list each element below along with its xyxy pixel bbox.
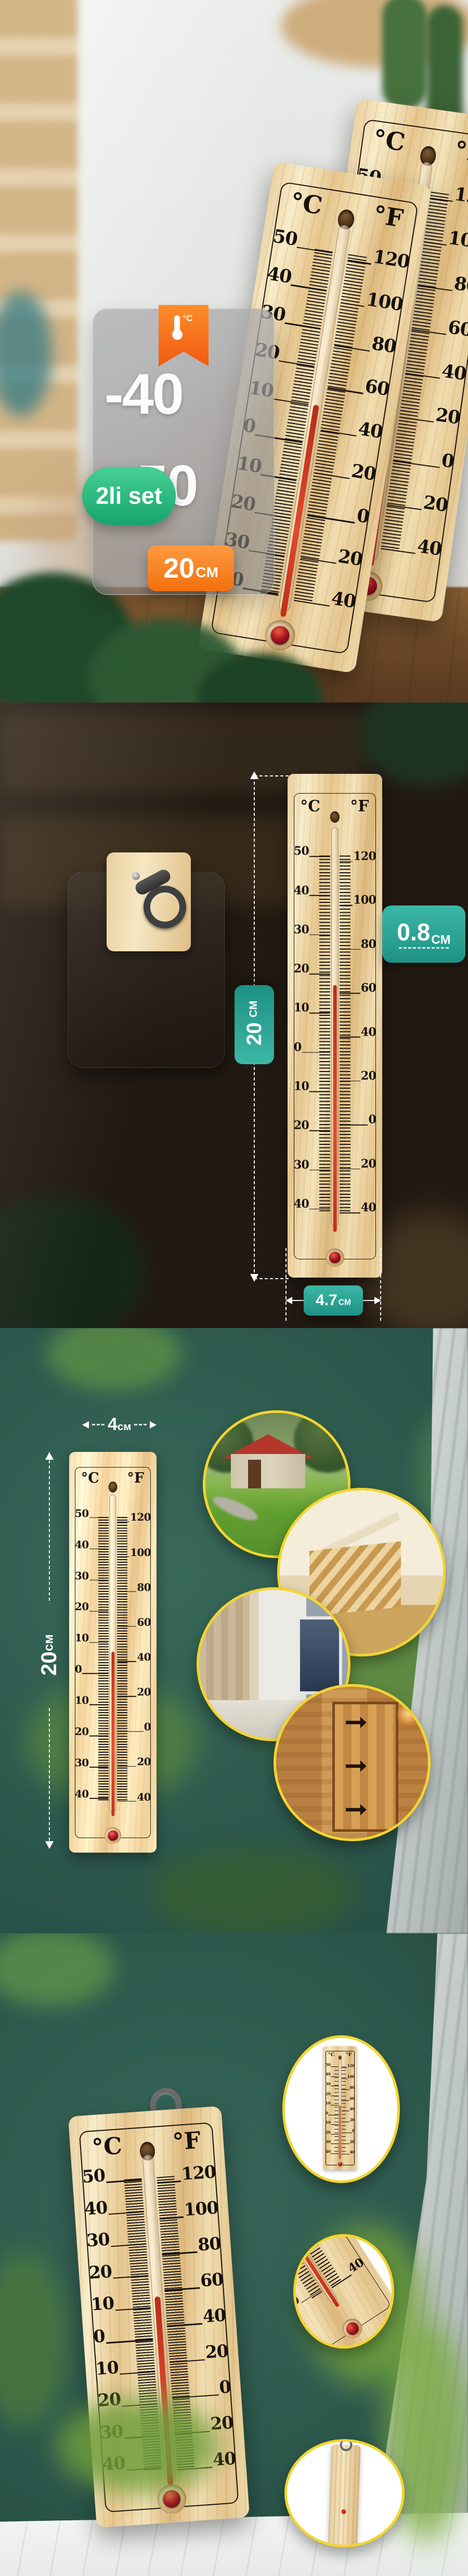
scale-value-fahrenheit: 80 (197, 2235, 221, 2253)
scale-value-celsius: 20 (294, 964, 309, 975)
sauna-photo (276, 1687, 428, 1839)
scale-value-fahrenheit: 60 (364, 377, 391, 398)
product-listing-image: °C°F504030201001020304012010080604020020… (0, 0, 468, 2576)
scale-row-celsius: 40 (75, 1787, 109, 1799)
marble-table (0, 2513, 468, 2576)
scale-value-celsius: 40 (326, 2073, 330, 2076)
width-measure-label: 4см (82, 1414, 157, 1435)
scale-line (89, 1736, 109, 1736)
window (297, 1616, 342, 1694)
scale-row-fahrenheit: 20 (342, 2118, 355, 2122)
hanger-ring-icon (340, 2439, 353, 2451)
scale-value-fahrenheit: 40 (350, 2108, 355, 2111)
scale-row-fahrenheit: 120 (342, 2064, 355, 2068)
scale-value-fahrenheit: 20 (361, 1071, 376, 1082)
background-blur-blob (0, 0, 78, 541)
celsius-unit-label: °C (83, 2132, 131, 2162)
scale-row-fahrenheit: 100 (342, 2075, 355, 2079)
scale-value-fahrenheit: 60 (200, 2271, 224, 2289)
scale-value-celsius: 10 (90, 2295, 114, 2313)
celsius-unit-label: °C (77, 1470, 103, 1486)
fahrenheit-unit-label: °F (123, 1470, 149, 1486)
scale-row-fahrenheit: 60 (342, 2096, 355, 2100)
scale-value-fahrenheit: 40 (416, 538, 443, 558)
scale-row-celsius: 20 (75, 1725, 109, 1737)
scale-row-celsius: 50 (326, 2062, 339, 2067)
scale-row-celsius: 40 (84, 2193, 145, 2217)
scale-row-celsius: 10 (294, 1001, 331, 1014)
scale-line (89, 1767, 109, 1767)
fahrenheit-unit-label: °F (345, 797, 374, 815)
scale-row-celsius: 20 (326, 2130, 339, 2134)
scale-value-celsius: 40 (75, 1789, 89, 1799)
scale-line (89, 1704, 109, 1705)
scale-row-celsius: 10 (95, 2353, 155, 2377)
scale-line (340, 1037, 360, 1038)
scale-row-celsius: 50 (294, 844, 331, 857)
scale-value-celsius: 30 (326, 2140, 330, 2144)
scale-line (309, 1209, 330, 1210)
detail-photo-front: °C°F504030201001020304012010080604020020… (282, 2035, 400, 2183)
scale-line (309, 856, 330, 857)
scale-value-fahrenheit: 0 (369, 1115, 376, 1126)
arrow-up-icon (45, 1452, 54, 1460)
scale-row-celsius: 30 (86, 2225, 147, 2249)
arrow-left-icon (82, 1421, 89, 1429)
height-measure-line (49, 1460, 50, 1601)
scale-value-celsius: 20 (88, 2263, 112, 2281)
scale-row-fahrenheit: 40 (165, 2303, 226, 2327)
width-guide-left (285, 1248, 287, 1321)
scale-row-fahrenheit: 20 (117, 1685, 151, 1697)
scale-row-fahrenheit: 80 (160, 2231, 221, 2255)
scale-row-fahrenheit: 120 (117, 1510, 151, 1522)
scale-row-celsius: 10 (90, 2289, 151, 2313)
scale-value-fahrenheit: 20 (350, 2119, 355, 2122)
measure-connector (254, 1278, 289, 1279)
thermometer-icon (174, 315, 180, 336)
scale-value-celsius: 0 (93, 2328, 105, 2345)
scale-value-fahrenheit: 40 (330, 590, 357, 611)
mercury-bulb (338, 2162, 342, 2166)
hanger-screw (132, 872, 140, 880)
fahrenheit-unit-label: °F (344, 2052, 354, 2058)
scale-row-celsius: 20 (294, 1118, 331, 1131)
scale-value-celsius: 50 (82, 2167, 106, 2185)
panel-hero: °C°F504030201001020304012010080604020020… (0, 0, 468, 703)
ribbon-unit-label: °C (183, 313, 192, 324)
mercury-column (111, 1652, 114, 1816)
scale-line (340, 1213, 360, 1214)
scale-value-celsius: 10 (75, 1633, 89, 1643)
range-low-value: -40 (105, 367, 183, 422)
detail-photo-bulb-closeup: °C°F504030201001020304012010080604020020… (293, 2234, 394, 2349)
scale-value-fahrenheit: 40 (441, 362, 467, 382)
scale-value-celsius: 0 (75, 1664, 82, 1674)
scale-value-celsius: 20 (294, 1120, 309, 1131)
scale-value-fahrenheit: 20 (435, 406, 461, 426)
scale-value-celsius: 20 (326, 2131, 330, 2134)
scale-line (82, 1673, 108, 1674)
scale-value-celsius: 10 (294, 1003, 309, 1014)
scale-row-celsius: 50 (75, 1506, 109, 1518)
scale-value-fahrenheit: 40 (137, 1652, 151, 1662)
scale-row-celsius: 40 (294, 1196, 331, 1209)
scale-value-celsius: 50 (326, 2063, 330, 2067)
scale-row-fahrenheit: 60 (117, 1615, 151, 1627)
mercury-bulb (344, 2320, 361, 2337)
scale-line (309, 1169, 330, 1170)
scale-line (89, 1549, 109, 1549)
scale-value-celsius: 30 (294, 925, 309, 936)
scale-value-fahrenheit: 100 (447, 229, 468, 251)
scale-line (340, 905, 353, 906)
scale-value-celsius: 10 (95, 2359, 119, 2377)
wooden-thermometer: °C°F504030201001020304012010080604020020… (69, 1452, 157, 1853)
scale-line (89, 1611, 109, 1611)
scale-value-fahrenheit: 80 (137, 1582, 151, 1592)
scale-value-fahrenheit: 40 (137, 1792, 151, 1802)
scale-row-fahrenheit: 60 (339, 980, 376, 993)
scale-line (340, 1168, 360, 1169)
length-badge: 20CM (148, 545, 234, 591)
scale-line (340, 1081, 360, 1082)
scale-value-fahrenheit: 0 (144, 1722, 151, 1732)
mercury-bulb (269, 624, 291, 646)
scale-value-celsius: 30 (86, 2231, 110, 2249)
tube-hole (109, 1482, 118, 1493)
scale-value-fahrenheit: 120 (130, 1512, 151, 1522)
scale-row-celsius: 30 (326, 2082, 339, 2086)
scale-value-fahrenheit: 40 (357, 420, 384, 441)
scale-line (118, 1661, 137, 1662)
scale-row-celsius: 30 (75, 1756, 109, 1768)
scale-row-fahrenheit: 100 (117, 1545, 151, 1557)
mercury-bulb (329, 1252, 340, 1263)
scale-line (340, 949, 360, 950)
scale-line (118, 1521, 130, 1522)
scale-line (118, 1557, 130, 1557)
scale-line (89, 1642, 109, 1642)
scale-value-celsius: 50 (294, 846, 309, 857)
scale-line (118, 1766, 137, 1766)
scale-line (309, 974, 330, 975)
thickness-badge: 0.8CM (382, 906, 465, 963)
scale-value-celsius: 20 (326, 2092, 330, 2096)
scale-value-fahrenheit: 100 (365, 290, 404, 313)
width-guide-right (380, 1248, 381, 1321)
sauna-door (332, 1702, 398, 1831)
hanger-ring-icon (144, 886, 186, 928)
arrow-right-icon (374, 1297, 381, 1304)
range-ribbon: °C (159, 305, 209, 366)
scale-line (309, 1091, 330, 1092)
scale-row-celsius: 10 (326, 2121, 339, 2125)
scale-line (118, 1801, 137, 1802)
scale-value-fahrenheit: 0 (356, 507, 370, 526)
scale-value-fahrenheit: 120 (372, 248, 410, 271)
scale-value-fahrenheit: 0 (352, 2129, 355, 2133)
scale-value-fahrenheit: 20 (350, 463, 377, 483)
wooden-thermometer-small: °C°F504030201001020304012010080604020020… (323, 2046, 357, 2170)
measure-connector (254, 775, 289, 776)
arrow-right-icon (150, 1421, 157, 1429)
scale-value-celsius: 30 (326, 2083, 330, 2086)
scale-row-celsius: 10 (294, 1079, 331, 1092)
scale-line (89, 1798, 109, 1799)
scale-row-fahrenheit: 120 (339, 849, 376, 862)
scale-value-fahrenheit: 20 (137, 1687, 151, 1697)
scale-row-fahrenheit: 80 (342, 2085, 355, 2089)
scale-value-celsius: 40 (84, 2199, 108, 2217)
scale-line (89, 1580, 109, 1580)
leaf-blur (47, 1328, 182, 1391)
mercury-bulb (108, 1830, 118, 1841)
scale-value-fahrenheit: 20 (205, 2343, 229, 2361)
scale-row-celsius: 40 (326, 2149, 339, 2153)
scale-row-fahrenheit: 20 (117, 1755, 151, 1767)
scale-value-fahrenheit: 100 (353, 895, 376, 906)
scale-row-fahrenheit: 0 (339, 1113, 376, 1126)
mercury-column (333, 985, 337, 1232)
scale-line (309, 895, 330, 896)
scale-row-fahrenheit: 40 (117, 1650, 151, 1662)
scale-value-fahrenheit: 20 (337, 547, 363, 568)
glass-tube (331, 827, 339, 1227)
scale-value-celsius: 10 (326, 2102, 330, 2106)
scale-value-fahrenheit: 80 (370, 335, 397, 356)
scale-value-celsius: 30 (75, 1758, 89, 1768)
scale-row-fahrenheit: 40 (117, 1790, 151, 1802)
scale-row-celsius: 10 (326, 2101, 339, 2106)
scale-row-fahrenheit: 120 (155, 2160, 216, 2184)
panel-dimensions: °C°F504030201001020304012010080604020020… (0, 703, 468, 1328)
scale-line (118, 1591, 137, 1592)
tube-hole (330, 811, 340, 823)
scale-value-fahrenheit: 20 (361, 1159, 376, 1170)
scale-value-fahrenheit: 20 (350, 2140, 355, 2144)
scale-row-fahrenheit: 0 (117, 1720, 151, 1732)
scale-line (118, 1626, 137, 1627)
width-badge: 4.7CM (304, 1285, 363, 1316)
scale-row-celsius: 0 (93, 2321, 153, 2345)
scale-value-fahrenheit: 40 (350, 2151, 355, 2154)
scale-row-celsius: 0 (326, 2111, 339, 2115)
scale-row-celsius: 20 (88, 2257, 149, 2281)
garden-path (210, 1492, 260, 1525)
scale-value-fahrenheit: 120 (347, 2064, 355, 2068)
scale-row-fahrenheit: 40 (342, 2150, 355, 2154)
scale-row-celsius: 20 (326, 2092, 339, 2096)
scale-value-celsius: 40 (75, 1539, 89, 1549)
leaf-blur (0, 1933, 114, 2006)
scale-row-celsius: 30 (326, 2140, 339, 2144)
mercury-bulb (162, 2489, 181, 2508)
scale-value-fahrenheit: 20 (422, 494, 449, 514)
scale-value-fahrenheit: 80 (350, 2086, 355, 2090)
scale-row-fahrenheit: 0 (170, 2375, 231, 2399)
scale-value-fahrenheit: 60 (137, 1617, 151, 1627)
height-measure-line (49, 1708, 50, 1841)
scale-row-fahrenheit: 40 (339, 1025, 376, 1038)
scale-row-celsius: 30 (294, 1157, 331, 1170)
scale-row-celsius: 0 (75, 1662, 109, 1674)
scale-value-fahrenheit: 80 (453, 275, 468, 295)
scale-row-celsius: 20 (75, 1600, 109, 1612)
leaf-blur (0, 2251, 68, 2428)
leaf-blur (151, 1848, 354, 1933)
celsius-unit-label: °C (327, 2052, 336, 2058)
panel-details: °C°F504030201001020304012010080604020020… (0, 1933, 468, 2576)
panel-size-usage: 4см 20см °C°F504030201001020304012010080… (0, 1328, 468, 1933)
thermometer-back-view (328, 2444, 361, 2547)
scale-value-fahrenheit: 120 (353, 851, 376, 862)
scale-row-fahrenheit: 100 (158, 2196, 218, 2220)
scale-value-celsius: 40 (294, 885, 309, 896)
scale-row-fahrenheit: 80 (117, 1580, 151, 1592)
scale-row-fahrenheit: 20 (339, 1156, 376, 1169)
detail-photo-back (284, 2439, 405, 2547)
cactus-plant (382, 0, 427, 109)
arrow-left-icon (285, 1297, 292, 1304)
dash-line (92, 1424, 105, 1425)
scale-value-fahrenheit: 60 (447, 318, 468, 339)
height-badge: 20CM (235, 985, 274, 1064)
scale-value-celsius: 50 (75, 1508, 89, 1518)
scale-row-fahrenheit: 80 (339, 937, 376, 950)
width-value: 4см (108, 1414, 131, 1435)
door-hinge (346, 1717, 367, 1728)
scale-row-fahrenheit: 40 (339, 1201, 376, 1214)
set-count-badge: 2li set (82, 467, 176, 525)
scale-row-fahrenheit: 60 (163, 2267, 224, 2291)
scale-row-fahrenheit: 20 (342, 2139, 355, 2144)
scale-row-fahrenheit: 20 (339, 1068, 376, 1081)
scale-row-celsius: 20 (294, 961, 331, 974)
wooden-thermometer: °C°F504030201001020304012010080604020020… (288, 774, 382, 1278)
scale-row-celsius: 10 (75, 1631, 109, 1643)
scale-value-fahrenheit: 40 (361, 1203, 376, 1214)
scale-line (340, 993, 360, 994)
scale-row-celsius: 40 (75, 1537, 109, 1549)
scale-value-fahrenheit: 100 (347, 2075, 355, 2079)
sauna-lamp (398, 1702, 419, 1726)
scale-value-fahrenheit: 40 (361, 1027, 376, 1038)
scale-row-celsius: 50 (81, 2161, 142, 2185)
height-value: 20см (30, 1605, 68, 1704)
scale-value-celsius: 40 (294, 1199, 309, 1210)
scale-row-fahrenheit: 20 (167, 2339, 228, 2363)
scale-value-fahrenheit: 100 (130, 1547, 151, 1557)
scale-value-fahrenheit: 60 (361, 983, 376, 994)
scale-row-celsius: 40 (294, 883, 331, 896)
scale-line (309, 934, 330, 935)
house-wall (231, 1454, 305, 1488)
scale-line (340, 861, 353, 862)
scale-value-celsius: 40 (326, 2150, 330, 2154)
fahrenheit-unit-label: °F (163, 2126, 211, 2157)
scale-value-celsius: 10 (75, 1695, 89, 1705)
leaf-blur (57, 2399, 218, 2493)
scale-row-fahrenheit: 40 (342, 2107, 355, 2111)
celsius-unit-label: °C (296, 797, 324, 815)
scale-value-fahrenheit: 0 (440, 452, 455, 470)
scale-value-celsius: 0 (294, 1042, 302, 1053)
scale-value-fahrenheit: 20 (137, 1757, 151, 1767)
scale-value-celsius: 50 (272, 227, 298, 248)
bulb-recess (326, 1248, 344, 1267)
door-hinge (346, 1761, 367, 1772)
thermometer-bulb-closeup: °C°F504030201001020304012010080604020020… (293, 2234, 394, 2349)
scale-value-celsius: 30 (75, 1571, 89, 1580)
scale-value-fahrenheit: 100 (184, 2199, 219, 2218)
usage-photo-sauna (274, 1684, 431, 1841)
scale-row-celsius: 10 (75, 1693, 109, 1705)
scale-line (118, 1731, 144, 1731)
scale-value-celsius: 30 (294, 1159, 309, 1170)
scale-line (309, 1013, 330, 1014)
house-door (248, 1460, 261, 1488)
scale-value-fahrenheit: 120 (181, 2163, 216, 2182)
arrow-down-icon (45, 1841, 54, 1849)
scale-value-celsius: 20 (75, 1727, 89, 1737)
scale-line (309, 1130, 330, 1131)
scale-value-fahrenheit: 80 (361, 939, 376, 950)
dash-line (134, 1424, 147, 1425)
scale-value-fahrenheit: 60 (350, 2097, 355, 2101)
scale-row-celsius: 40 (326, 2072, 339, 2076)
scale-value-fahrenheit: 40 (202, 2307, 226, 2325)
scale-line (89, 1517, 109, 1518)
scale-value-fahrenheit: 120 (453, 185, 468, 208)
varnish-dot (341, 2509, 346, 2514)
scale-value-celsius: 20 (75, 1602, 89, 1612)
scale-value-celsius: 10 (294, 1081, 309, 1092)
scale-row-fahrenheit: 100 (339, 893, 376, 906)
mercury-column (340, 2106, 341, 2159)
bulb-recess (105, 1827, 121, 1844)
scale-line (118, 1696, 137, 1697)
scale-line (340, 1125, 368, 1126)
scale-value-fahrenheit: 0 (218, 2379, 231, 2396)
scale-value-celsius: 10 (326, 2121, 330, 2125)
scale-value-celsius: 0 (326, 2111, 328, 2115)
scale-row-celsius: 30 (294, 922, 331, 935)
bulb-recess (337, 2161, 343, 2167)
scale-row-fahrenheit: 0 (342, 2128, 355, 2133)
scale-value-celsius: 40 (266, 265, 292, 286)
scale-line (302, 1052, 330, 1053)
glass-tube (109, 1495, 116, 1812)
scale-row-celsius: 0 (294, 1040, 331, 1053)
scale-row-celsius: 30 (75, 1568, 109, 1580)
door-hinge (346, 1804, 367, 1816)
